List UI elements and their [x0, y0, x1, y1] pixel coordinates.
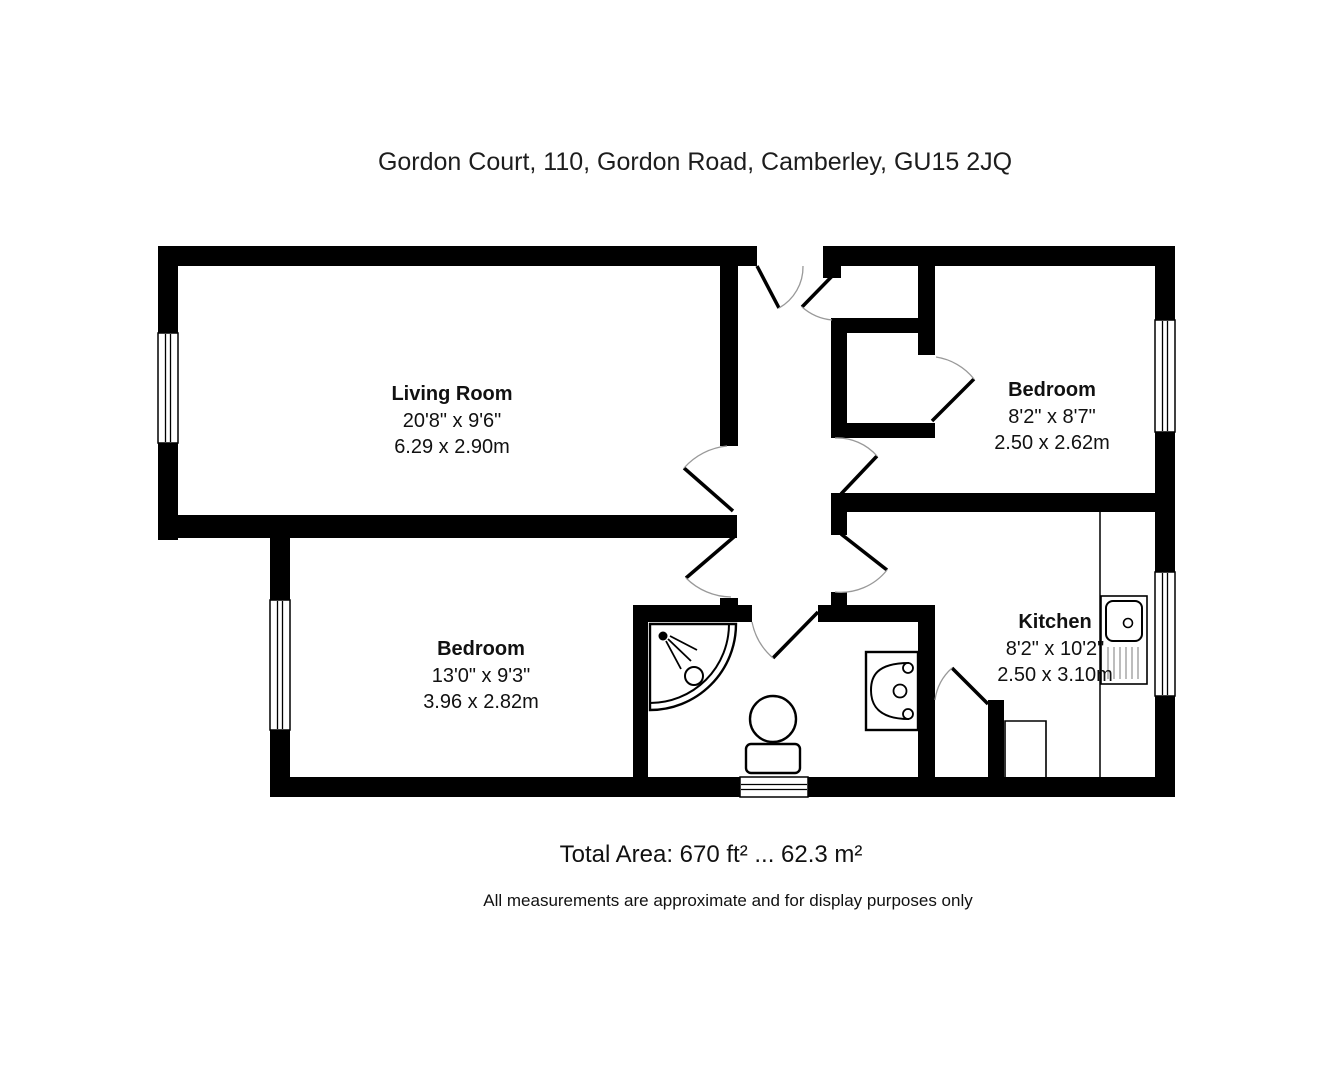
bedroom-right-label: Bedroom 8'2" x 8'7" 2.50 x 2.62m — [932, 377, 1172, 457]
worktop-icon — [1005, 721, 1046, 777]
room-dims-metric: 3.96 x 2.82m — [321, 689, 641, 716]
floorplan-page: { "title": "Gordon Court, 110, Gordon Ro… — [0, 0, 1330, 1080]
bedroom-left-label: Bedroom 13'0" x 9'3" 3.96 x 2.82m — [321, 636, 641, 716]
shower-icon — [650, 624, 736, 710]
bathroom-door-icon — [752, 612, 818, 658]
window-icon — [270, 600, 290, 730]
kitchen-hall-door-icon — [835, 534, 887, 592]
room-name: Bedroom — [932, 377, 1172, 404]
bedroom-left-door-icon — [686, 536, 735, 597]
room-name: Kitchen — [935, 609, 1175, 636]
window-icon — [158, 333, 178, 443]
living-room-label: Living Room 20'8" x 9'6" 6.29 x 2.90m — [292, 381, 612, 461]
living-room-door-icon — [684, 446, 733, 511]
room-name: Living Room — [292, 381, 612, 408]
room-name: Bedroom — [321, 636, 641, 663]
room-dims-imperial: 13'0" x 9'3" — [321, 663, 641, 690]
bedroom-right-door-icon — [835, 438, 877, 494]
room-dims-imperial: 8'2" x 8'7" — [932, 404, 1172, 431]
room-dims-imperial: 20'8" x 9'6" — [292, 408, 612, 435]
room-dims-metric: 6.29 x 2.90m — [292, 434, 612, 461]
floor-plan — [0, 0, 1330, 1080]
window-icon — [740, 777, 808, 797]
room-dims-metric: 2.50 x 2.62m — [932, 430, 1172, 457]
room-dims-imperial: 8'2" x 10'2" — [935, 636, 1175, 663]
toilet-icon — [746, 696, 800, 773]
room-dims-metric: 2.50 x 3.10m — [935, 662, 1175, 689]
kitchen-label: Kitchen 8'2" x 10'2" 2.50 x 3.10m — [935, 609, 1175, 689]
total-area-text: Total Area: 670 ft² ... 62.3 m² — [560, 841, 863, 869]
basin-icon — [866, 652, 918, 730]
disclaimer-text: All measurements are approximate and for… — [483, 891, 972, 911]
walls — [158, 246, 1175, 797]
